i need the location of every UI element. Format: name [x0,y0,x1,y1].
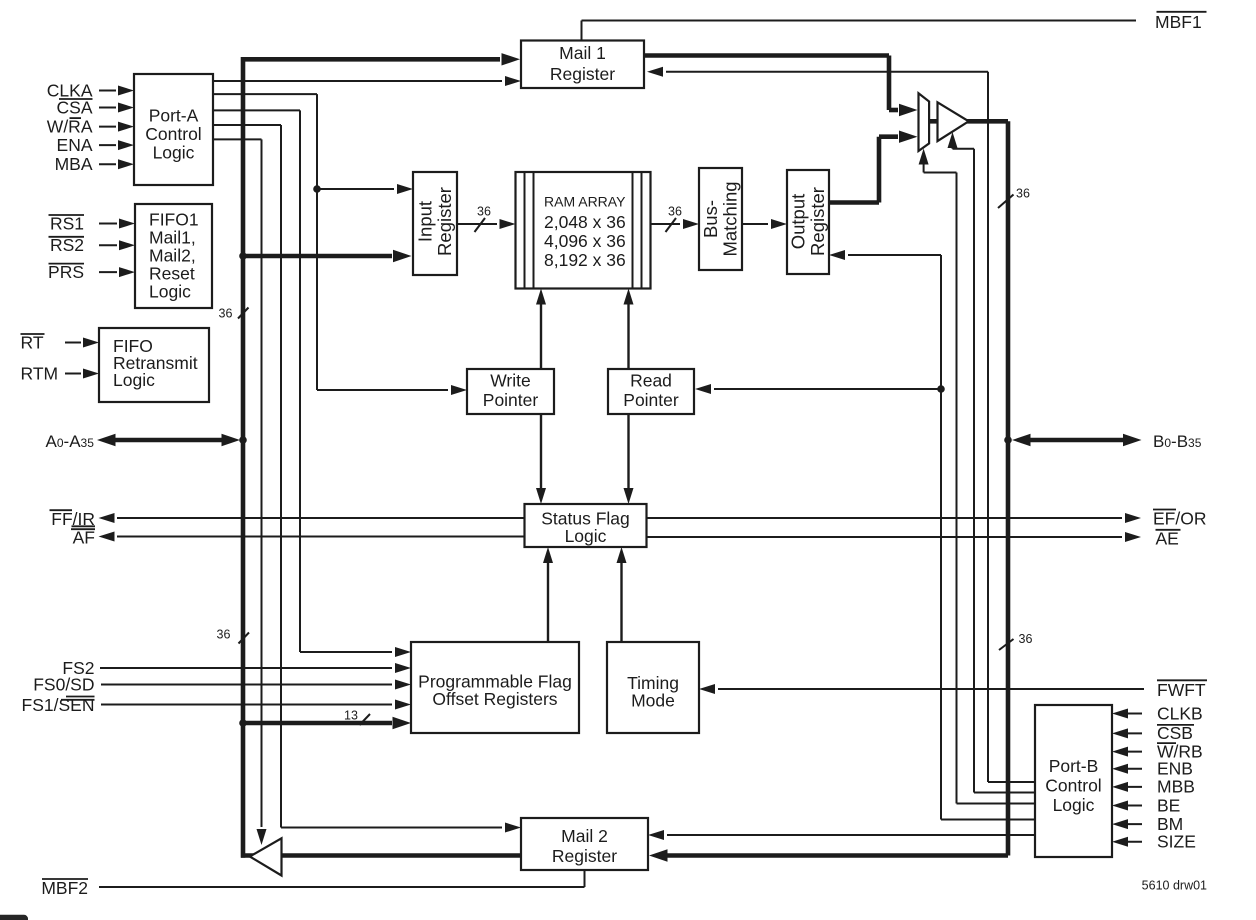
svg-text:FS1/SEN: FS1/SEN [22,695,95,715]
svg-text:PRS: PRS [48,262,84,282]
svg-text:A0-A35: A0-A35 [46,432,95,451]
svg-text:Pointer: Pointer [483,390,539,410]
svg-text:RAM ARRAY: RAM ARRAY [544,194,626,210]
svg-text:4,096 x 36: 4,096 x 36 [544,231,626,251]
svg-text:Read: Read [630,370,672,390]
svg-text:36: 36 [219,307,233,321]
svg-text:Control: Control [145,124,201,144]
svg-text:CSB: CSB [1157,723,1193,743]
svg-text:Register: Register [552,846,617,866]
svg-text:Mail 2: Mail 2 [561,826,608,846]
svg-text:CLKB: CLKB [1157,703,1203,723]
svg-text:EF/OR: EF/OR [1153,508,1206,528]
svg-text:MBB: MBB [1157,777,1195,797]
svg-text:Logic: Logic [113,370,155,390]
svg-text:Logic: Logic [1053,795,1095,815]
svg-text:RS2: RS2 [50,235,84,255]
svg-text:36: 36 [668,205,682,219]
svg-text:BE: BE [1157,795,1180,815]
svg-text:Register: Register [550,64,615,84]
svg-text:8,192 x 36: 8,192 x 36 [544,250,626,270]
svg-text:SIZE: SIZE [1157,832,1196,852]
svg-text:36: 36 [217,628,231,642]
svg-text:Mode: Mode [631,690,675,710]
svg-text:CSA: CSA [57,97,93,117]
svg-text:FIFO1: FIFO1 [149,209,199,229]
svg-text:Write: Write [490,370,531,390]
svg-text:ENA: ENA [57,135,93,155]
svg-text:RTM: RTM [21,363,59,383]
svg-text:Port-B: Port-B [1049,756,1099,776]
svg-text:AF: AF [73,527,95,547]
svg-text:AE: AE [1156,528,1179,548]
svg-text:Register: Register [807,187,828,256]
svg-text:Output: Output [788,194,809,250]
svg-text:5610 drw01: 5610 drw01 [1142,879,1207,893]
svg-text:W/RA: W/RA [47,116,93,136]
svg-text:Logic: Logic [149,281,191,301]
svg-text:2,048 x 36: 2,048 x 36 [544,212,626,232]
svg-text:Control: Control [1045,775,1101,795]
svg-text:Pointer: Pointer [623,390,679,410]
svg-text:36: 36 [1019,632,1033,646]
svg-text:ENB: ENB [1157,759,1193,779]
svg-text:Port-A: Port-A [149,105,199,125]
svg-text:FS0/SD: FS0/SD [33,674,94,694]
svg-text:Matching: Matching [719,181,740,256]
svg-text:13: 13 [344,709,358,723]
svg-text:MBF2: MBF2 [41,878,88,898]
svg-text:RS1: RS1 [50,213,84,233]
svg-text:Logic: Logic [153,142,195,162]
svg-text:Bus-: Bus- [700,200,721,238]
svg-text:36: 36 [477,205,491,219]
svg-text:Register: Register [434,187,455,256]
svg-text:36: 36 [1016,187,1030,201]
svg-text:Input: Input [415,201,436,242]
svg-text:Logic: Logic [565,526,607,546]
svg-text:MBF1: MBF1 [1155,12,1202,32]
svg-text:Mail2,: Mail2, [149,245,196,265]
svg-text:Mail1,: Mail1, [149,227,196,247]
svg-text:Offset Registers: Offset Registers [432,689,557,709]
svg-text:B0-B35: B0-B35 [1153,432,1202,451]
svg-text:Reset: Reset [149,263,195,283]
svg-text:MBA: MBA [55,154,93,174]
svg-text:RT: RT [21,332,44,352]
svg-text:FWFT: FWFT [1157,680,1206,700]
svg-text:Mail 1: Mail 1 [559,43,606,63]
